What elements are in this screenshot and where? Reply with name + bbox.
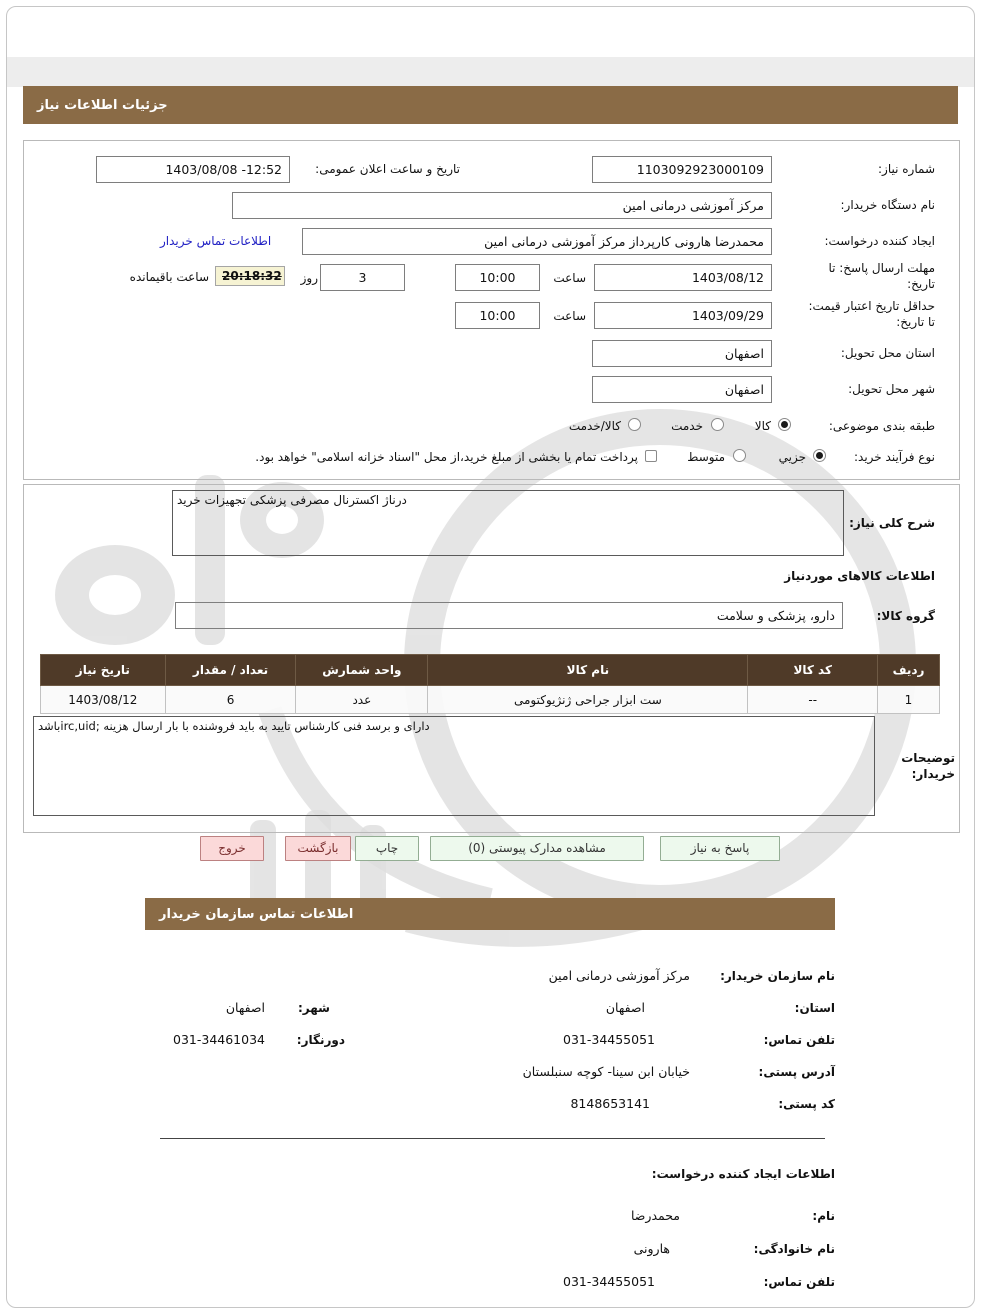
creator-phone-value: 031-34455051 xyxy=(563,1274,655,1289)
org-zip-value: 8148653141 xyxy=(570,1096,650,1111)
buyer-notes-textarea[interactable]: باشد‎irc,uid; هزینه‎ ارسال‎ بار‎ با‎ فرو… xyxy=(33,716,875,816)
request-creator-field[interactable]: محمدرضا هارونی کارپرداز مرکز آموزشی درما… xyxy=(302,228,772,255)
org-fax-label: دورنگار: xyxy=(297,1032,345,1048)
announce-datetime-label: تاریخ و ساعت اعلان عمومی: xyxy=(315,161,460,177)
creator-last-name-value: هارونی xyxy=(634,1241,670,1256)
radio-minor-label: جزیي xyxy=(779,449,806,465)
goods-table-row: 1 -- ست ابزار جراحی ژنژیوکتومی عدد 6 140… xyxy=(41,686,940,714)
buyer-org-field[interactable]: مرکز آموزشی درمانی امین xyxy=(232,192,772,219)
org-fax-value: 031-34461034 xyxy=(173,1032,265,1047)
countdown-timer: 20:18:32 xyxy=(215,266,285,286)
org-province-value: اصفهان xyxy=(606,1000,645,1015)
buyer-contact-link[interactable]: اطلاعات تماس خریدار xyxy=(160,234,271,248)
buyer-notes-label: توضیحات خریدار: xyxy=(877,750,955,782)
radio-service[interactable] xyxy=(711,418,724,431)
buyer-org-label: نام دستگاه خریدار: xyxy=(841,197,936,213)
radio-goods[interactable] xyxy=(778,418,791,431)
goods-group-label: گروه کالا: xyxy=(877,608,935,624)
creator-first-name-label: نام: xyxy=(812,1208,835,1224)
reply-to-need-button[interactable]: پاسخ به نیاز xyxy=(660,836,780,861)
col-item-name: نام کالا xyxy=(428,655,748,686)
page-content: جزئیات اطلاعات نیاز شماره نیاز: 11030929… xyxy=(0,0,981,1314)
goods-group-field[interactable]: دارو، پزشکی و سلامت xyxy=(175,602,843,629)
cell-quantity: 6 xyxy=(165,686,296,714)
section-header-org-contact: اطلاعات تماس سازمان خریدار xyxy=(145,898,835,930)
cell-row-number: 1 xyxy=(878,686,940,714)
exit-button[interactable]: خروج xyxy=(200,836,264,861)
org-contact-title: اطلاعات تماس سازمان خریدار xyxy=(159,907,353,922)
creator-last-name-label: نام خانوادگی: xyxy=(754,1241,835,1257)
org-address-label: آدرس پستی: xyxy=(759,1064,835,1080)
price-time-field[interactable]: 10:00 xyxy=(455,302,540,329)
need-description-textarea[interactable]: خرید‎ تجهیزات‎ پزشکی‎ مصرفی‎ اکسترنال‎ د… xyxy=(172,490,844,556)
radio-goods-label: کالا xyxy=(755,418,771,434)
radio-service-label: خدمت xyxy=(671,418,703,434)
purchase-process-label: نوع فرآیند خرید: xyxy=(854,449,935,465)
org-zip-label: کد پستی: xyxy=(778,1096,835,1112)
treasury-docs-checkbox[interactable] xyxy=(645,450,657,462)
col-need-date: تاریخ نیاز xyxy=(41,655,166,686)
creator-section-heading: اطلاعات ایجاد کننده درخواست: xyxy=(652,1166,835,1182)
price-validity-date-field[interactable]: 1403/09/29 xyxy=(594,302,772,329)
col-count-unit: واحد شمارش xyxy=(296,655,428,686)
treasury-docs-note: پرداخت تمام یا بخشی از مبلغ خرید،از محل … xyxy=(255,449,638,465)
section-divider xyxy=(160,1138,825,1139)
cell-item-name: ست ابزار جراحی ژنژیوکتومی xyxy=(428,686,748,714)
need-number-field[interactable]: 1103092923000109 xyxy=(592,156,772,183)
goods-table-header-row: ردیف کد کالا نام کالا واحد شمارش تعداد /… xyxy=(41,655,940,686)
reply-deadline-label: مهلت ارسال پاسخ: تا تاریخ: xyxy=(827,260,935,292)
col-item-code: کد کالا xyxy=(748,655,878,686)
col-quantity: تعداد / مقدار xyxy=(165,655,296,686)
request-creator-label: ایجاد کننده درخواست: xyxy=(824,233,935,249)
delivery-city-label: شهر محل تحویل: xyxy=(848,381,935,397)
org-city-label: شهر: xyxy=(298,1000,330,1016)
goods-table: ردیف کد کالا نام کالا واحد شمارش تعداد /… xyxy=(40,654,940,714)
reply-deadline-date-field[interactable]: 1403/08/12 xyxy=(594,264,772,291)
price-validity-label: حداقل تاریخ اعتبار قیمت: تا تاریخ: xyxy=(807,298,935,330)
org-phone-label: تلفن تماس: xyxy=(764,1032,835,1048)
view-attachments-button[interactable]: مشاهده مدارک پیوستی (0) xyxy=(430,836,644,861)
org-city-value: اصفهان xyxy=(226,1000,265,1015)
need-number-label: شماره نیاز: xyxy=(878,161,935,177)
delivery-city-field[interactable]: اصفهان xyxy=(592,376,772,403)
org-province-label: استان: xyxy=(795,1000,835,1016)
cell-item-code: -- xyxy=(748,686,878,714)
creator-first-name-value: محمدرضا xyxy=(631,1208,680,1223)
radio-goods-service[interactable] xyxy=(628,418,641,431)
section-header-need-details: جزئیات اطلاعات نیاز xyxy=(23,86,958,124)
radio-minor[interactable] xyxy=(813,449,826,462)
radio-medium-label: متوسط xyxy=(687,449,725,465)
radio-medium[interactable] xyxy=(733,449,746,462)
need-details-title: جزئیات اطلاعات نیاز xyxy=(37,98,168,113)
cell-need-date: 1403/08/12 xyxy=(41,686,166,714)
subject-classification-label: طبقه بندی موضوعی: xyxy=(829,418,935,434)
day-unit-label: روز xyxy=(301,270,318,286)
reply-days-field[interactable]: 3 xyxy=(320,264,405,291)
reply-hour-label: ساعت xyxy=(553,270,586,286)
back-button[interactable]: بازگشت xyxy=(285,836,351,861)
reply-time-field[interactable]: 10:00 xyxy=(455,264,540,291)
price-hour-label: ساعت xyxy=(553,308,586,324)
top-gray-band xyxy=(7,57,974,87)
announce-datetime-field[interactable]: 1403/08/08 -12:52 xyxy=(96,156,290,183)
cell-count-unit: عدد xyxy=(296,686,428,714)
tender-need-details-page: جزئیات اطلاعات نیاز شماره نیاز: 11030929… xyxy=(0,0,981,1314)
need-description-label: شرح کلی نیاز: xyxy=(849,515,935,531)
org-phone-value: 031-34455051 xyxy=(563,1032,655,1047)
org-name-label: نام سازمان خریدار: xyxy=(720,968,835,984)
org-name-value: مرکز آموزشی درمانی امین xyxy=(549,968,690,983)
required-goods-section-title: اطلاعات کالاهای موردنیاز xyxy=(784,568,935,584)
delivery-province-label: استان محل تحویل: xyxy=(841,345,935,361)
print-button[interactable]: چاپ xyxy=(355,836,419,861)
col-row-number: ردیف xyxy=(878,655,940,686)
delivery-province-field[interactable]: اصفهان xyxy=(592,340,772,367)
radio-goods-service-label: کالا/خدمت xyxy=(569,418,621,434)
org-address-value: خیابان ابن سینا- کوچه سنبلستان xyxy=(523,1064,690,1079)
creator-phone-label: تلفن تماس: xyxy=(764,1274,835,1290)
remaining-hours-label: ساعت باقیمانده xyxy=(130,269,209,285)
